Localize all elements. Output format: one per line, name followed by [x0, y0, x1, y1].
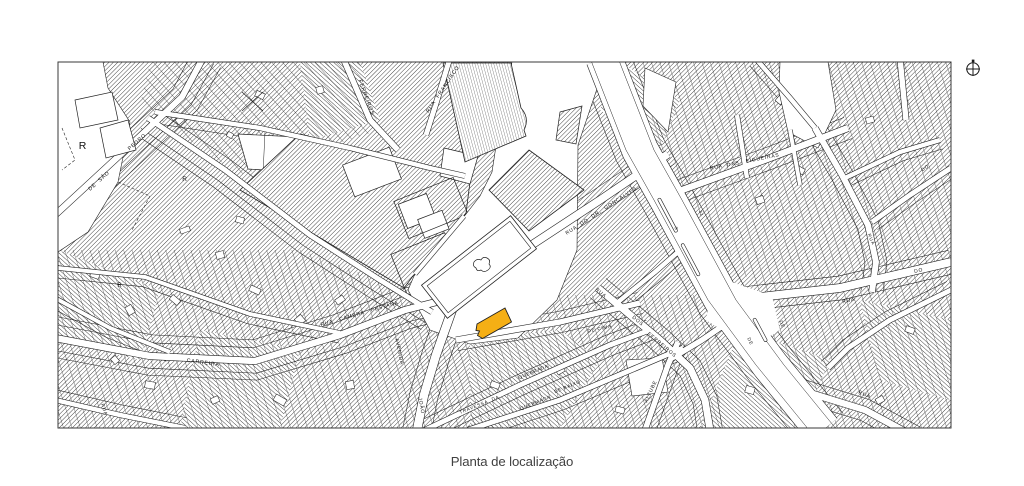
svg-text:R: R [79, 140, 87, 152]
svg-text:R: R [117, 283, 122, 289]
svg-text:R: R [182, 176, 188, 183]
svg-text:Planta de localização: Planta de localização [451, 454, 574, 469]
